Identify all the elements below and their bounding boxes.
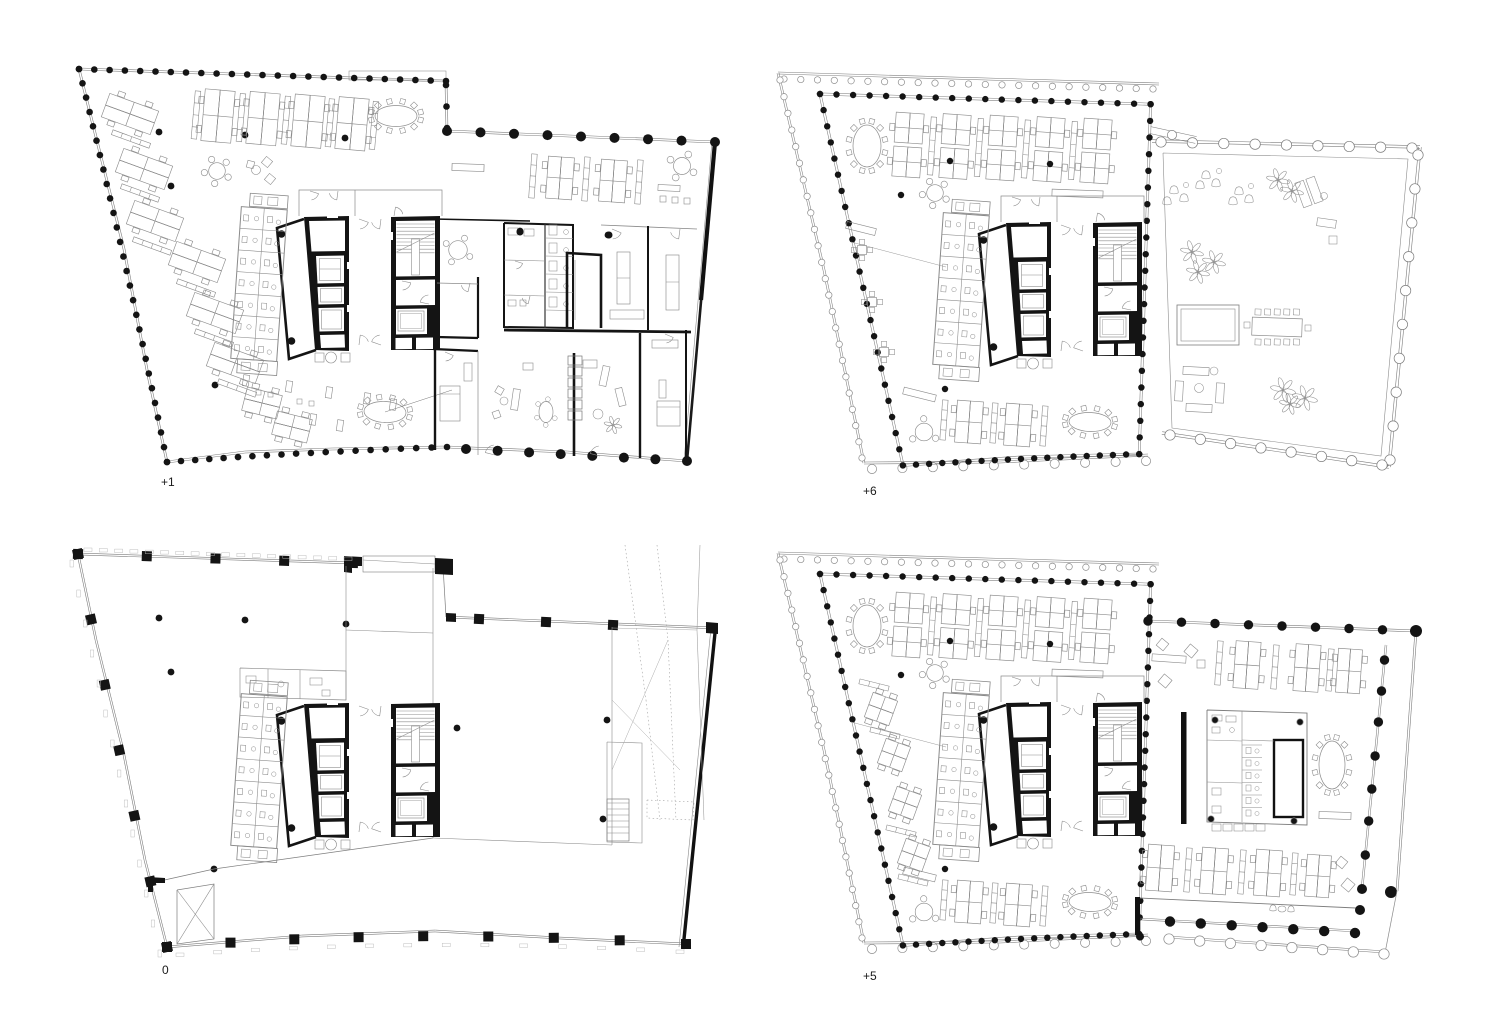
svg-text:+5: +5 [863, 969, 877, 983]
svg-text:+1: +1 [161, 475, 175, 489]
svg-text:0: 0 [162, 963, 169, 977]
svg-text:+6: +6 [863, 484, 877, 498]
